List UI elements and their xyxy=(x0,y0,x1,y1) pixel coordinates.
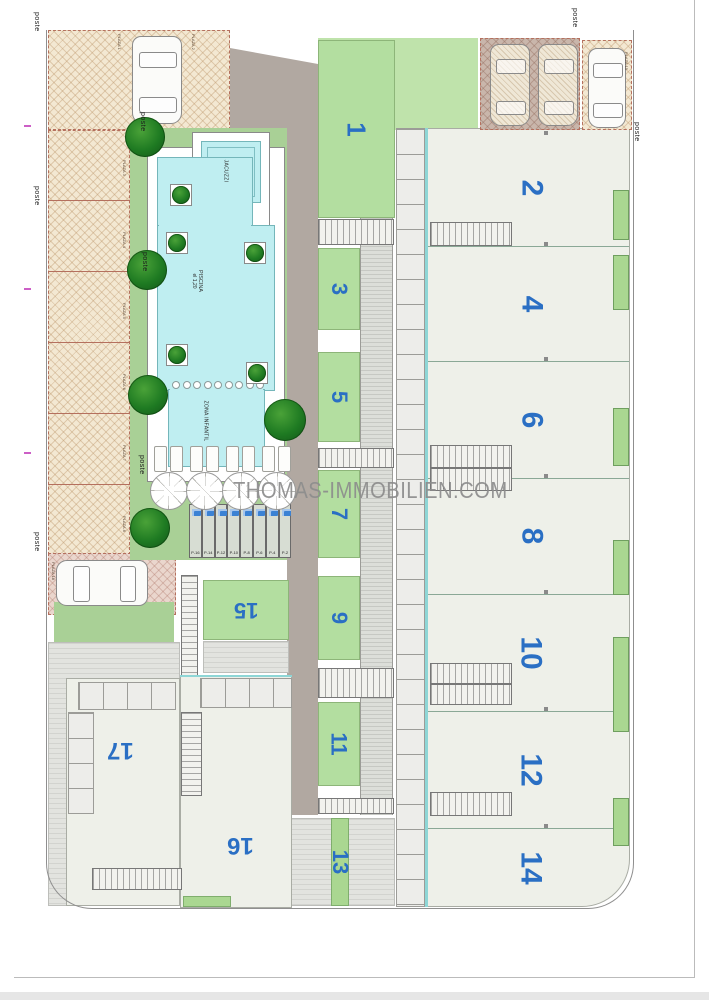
unit-number-text: 5 xyxy=(326,391,352,403)
parking-space-label: P-8 xyxy=(241,550,252,555)
unit-number-text: 15 xyxy=(234,597,258,623)
parking-glyph-icon xyxy=(205,509,214,516)
page-frame-right xyxy=(694,0,695,978)
unit-15-paving xyxy=(203,641,289,673)
lounger-icon xyxy=(170,446,183,472)
plaza-label: PLAZA 4 xyxy=(101,232,127,238)
parking-space-label: P-12 xyxy=(216,550,227,555)
parking-space-label: P-14 xyxy=(203,550,214,555)
parking-glyph-icon xyxy=(256,509,265,516)
zona-infantil-label: ZONA INFANTIL xyxy=(202,401,208,442)
plaza-label: PLAZA 18 xyxy=(30,562,56,568)
stairs xyxy=(430,222,512,246)
plaza-label: PLAZA 3 xyxy=(101,160,127,166)
unit-number-text: 14 xyxy=(514,851,548,884)
hedge-strip xyxy=(613,540,629,595)
stairs xyxy=(318,798,394,814)
unit-17-cells-top xyxy=(78,682,176,710)
plaza-label: PLAZA 15 xyxy=(603,52,629,58)
parking-space: P-12 xyxy=(215,504,228,558)
lounger-icon xyxy=(278,446,291,472)
unit-number-text: 10 xyxy=(514,636,548,669)
unit-number-13: 13 xyxy=(315,818,365,906)
door-mark xyxy=(544,357,548,361)
driveway-strip xyxy=(360,218,393,815)
door-mark xyxy=(544,131,548,135)
pool-divider-bubble xyxy=(214,381,222,389)
stairs xyxy=(318,668,394,698)
poste-label: poste xyxy=(6,532,40,542)
parking-space-label: P-16 xyxy=(190,550,201,555)
pool-divider-bubble xyxy=(172,381,180,389)
tree-icon xyxy=(168,234,186,252)
unit-16-cells xyxy=(200,678,292,708)
lounger-icon xyxy=(154,446,167,472)
stairs xyxy=(430,445,512,468)
lounger-icon xyxy=(242,446,255,472)
parking-space-label: P-10 xyxy=(228,550,239,555)
pool-divider-bubble xyxy=(225,381,233,389)
unit-number-16: 16 xyxy=(205,790,275,900)
pool-divider-bubble xyxy=(235,381,243,389)
car-icon xyxy=(538,44,578,126)
site-plan: 2468101214 JACUZZI PISCINA el 1,20 ZONA … xyxy=(0,0,709,1000)
carport-bay-lines xyxy=(48,130,130,555)
parking-space: P-14 xyxy=(202,504,215,558)
unit-number-text: 1 xyxy=(341,122,372,136)
unit-number-14: 14 xyxy=(486,828,576,907)
unit-number-text: 13 xyxy=(327,850,353,874)
lawn-bottom-left xyxy=(54,602,174,642)
parking-space: P-10 xyxy=(227,504,240,558)
survey-mark xyxy=(24,125,31,127)
watermark: THOMAS-IMMOBILIEN.COM xyxy=(233,477,508,504)
poste-label: poste xyxy=(112,112,146,122)
patio-cells-column xyxy=(396,128,425,907)
parking-space-label: P-6 xyxy=(254,550,265,555)
unit-number-text: 2 xyxy=(514,179,548,196)
lounger-icon xyxy=(226,446,239,472)
parking-glyph-icon xyxy=(243,509,252,516)
parking-glyph-icon xyxy=(230,509,239,516)
unit-15-stairs xyxy=(181,575,198,680)
unit-number-1: 1 xyxy=(318,40,395,218)
poste-label: poste xyxy=(114,252,148,262)
jacuzzi-label: JACUZZI xyxy=(222,160,228,183)
parking-glyph-icon xyxy=(218,509,227,516)
poste-label: poste xyxy=(544,8,578,18)
unit-number-text: 3 xyxy=(326,283,352,295)
car-icon xyxy=(132,36,182,124)
pool-divider-bubble xyxy=(193,381,201,389)
parking-glyph-icon xyxy=(282,509,291,516)
tree-icon xyxy=(168,346,186,364)
parking-glyph-icon xyxy=(192,509,201,516)
unit-number-text: 4 xyxy=(514,295,548,312)
pool-divider-bubble xyxy=(204,381,212,389)
lounger-icon xyxy=(262,446,275,472)
car-icon xyxy=(490,44,530,126)
unit-number-text: 7 xyxy=(326,508,352,520)
tree-icon xyxy=(264,399,306,441)
plaza-label: PLAZA 6 xyxy=(101,374,127,380)
unit-number-text: 17 xyxy=(107,736,134,764)
page-edge-band xyxy=(0,992,709,1000)
unit-number-4: 4 xyxy=(486,246,576,361)
plaza-label: PLAZA 5 xyxy=(101,303,127,309)
stairs xyxy=(430,792,512,816)
hedge-strip xyxy=(613,190,629,240)
unit-number-text: 16 xyxy=(227,831,254,859)
poste-label: poste xyxy=(606,122,640,132)
unit-number-text: 9 xyxy=(326,612,352,624)
units-cyan-edge xyxy=(425,128,428,907)
tree-icon xyxy=(130,508,170,548)
parasol-icon xyxy=(186,472,224,510)
pool-seam-patch xyxy=(159,219,251,229)
parking-space: P-4 xyxy=(266,504,279,558)
survey-mark xyxy=(24,452,31,454)
door-mark xyxy=(544,824,548,828)
poste-label: poste xyxy=(6,186,40,196)
unit-16-cyan-edge xyxy=(180,675,292,677)
unit-17-stairs xyxy=(92,868,182,890)
door-mark xyxy=(544,590,548,594)
unit-number-17: 17 xyxy=(85,715,155,785)
survey-mark xyxy=(24,288,31,290)
car-icon xyxy=(588,48,626,128)
parking-space: P-2 xyxy=(279,504,292,558)
stairs xyxy=(430,684,512,705)
parking-space-label: P-2 xyxy=(280,550,291,555)
plaza-label: PLAZA 7 xyxy=(101,445,127,451)
door-mark xyxy=(544,474,548,478)
stairs xyxy=(318,219,394,245)
hedge-strip xyxy=(613,637,629,732)
stairs xyxy=(430,663,512,684)
lounger-icon xyxy=(206,446,219,472)
door-mark xyxy=(544,242,548,246)
hedge-strip xyxy=(613,255,629,310)
pool-divider-bubble xyxy=(183,381,191,389)
unit-number-9: 9 xyxy=(318,576,360,660)
tree-icon xyxy=(248,364,266,382)
tree-icon xyxy=(128,375,168,415)
unit-number-text: 8 xyxy=(514,528,548,545)
piscina-label: PISCINA el 1,20 xyxy=(191,270,203,292)
hedge-strip xyxy=(613,798,629,846)
unit-number-3: 3 xyxy=(318,248,360,330)
parasol-icon xyxy=(150,472,188,510)
poste-label: poste xyxy=(6,12,40,22)
lounger-icon xyxy=(190,446,203,472)
parking-space: P-8 xyxy=(240,504,253,558)
unit-number-5: 5 xyxy=(318,352,360,442)
unit-number-text: 12 xyxy=(514,753,548,786)
unit-number-text: 6 xyxy=(514,411,548,428)
poste-label: poste xyxy=(111,455,145,465)
unit-number-11: 11 xyxy=(318,702,360,786)
unit-number-15: 15 xyxy=(203,580,289,640)
tree-icon xyxy=(172,186,190,204)
car-icon xyxy=(56,560,148,606)
parking-space-label: P-4 xyxy=(267,550,278,555)
unit-16-stairs xyxy=(181,712,202,796)
hedge-strip xyxy=(613,408,629,466)
plaza-label: PLAZA 1 xyxy=(96,34,122,40)
tree-icon xyxy=(246,244,264,262)
unit-number-text: 11 xyxy=(326,732,352,755)
plaza-label: PLAZA 2 xyxy=(170,34,196,40)
parking-space: P-6 xyxy=(253,504,266,558)
road-top xyxy=(230,38,318,128)
parking-space: P-16 xyxy=(189,504,202,558)
parking-glyph-icon xyxy=(269,509,278,516)
page-frame-bottom xyxy=(14,977,695,978)
plaza-label: PLAZA 8 xyxy=(101,516,127,522)
stairs xyxy=(318,448,394,468)
door-mark xyxy=(544,707,548,711)
